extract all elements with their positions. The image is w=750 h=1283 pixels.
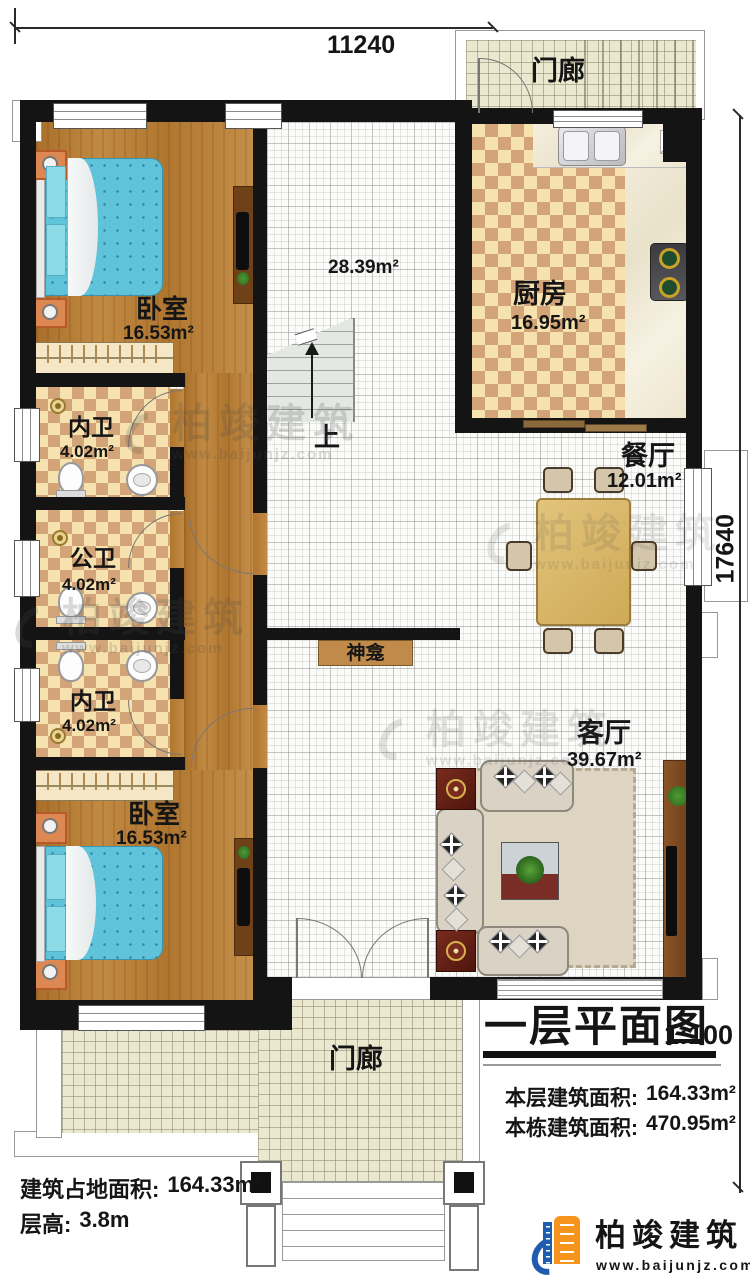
- wall: [20, 497, 185, 510]
- building-area-row: 本栋建筑面积: 470.95m²: [505, 1112, 736, 1142]
- brand-url: www.baijunjz.com: [596, 1258, 750, 1272]
- dimension-tick: [732, 1181, 743, 1192]
- porch-bottom-label: 门廊: [329, 1046, 383, 1073]
- floor-plan-canvas: 门廊 上: [0, 0, 750, 1283]
- window: [14, 668, 40, 722]
- bath-inner-top-label: 内卫: [68, 416, 114, 439]
- sink-basin: [563, 131, 589, 161]
- brand-building-icon: [554, 1216, 580, 1264]
- stairs-up-label: 上: [314, 424, 340, 450]
- floor-area-label: 本层建筑面积:: [505, 1082, 638, 1112]
- dimension-top-value: 11240: [327, 33, 395, 58]
- title-underline-thin: [483, 1064, 721, 1066]
- footprint-area-row: 建筑占地面积: 164.33m²: [20, 1172, 262, 1204]
- toilet-tank: [56, 616, 86, 624]
- bath-inner-bottom-area-label: 4.02m²: [62, 717, 116, 734]
- dining-chair: [543, 467, 573, 493]
- door-opening: [253, 705, 267, 768]
- brand-name: 柏竣建筑: [595, 1220, 743, 1251]
- washbasin: [126, 464, 158, 496]
- kitchen-area-label: 16.95m²: [511, 313, 586, 333]
- dining-chair: [543, 628, 573, 654]
- floor-area-value: 164.33m²: [646, 1082, 736, 1112]
- kitchen-window: [553, 110, 643, 128]
- floor-area-row: 本层建筑面积: 164.33m²: [505, 1082, 736, 1112]
- pillow: [46, 166, 66, 218]
- pillow: [46, 854, 66, 900]
- footprint-area-value: 164.33m²: [167, 1172, 261, 1204]
- bath-public-area-label: 4.02m²: [62, 576, 116, 593]
- pillow: [46, 906, 66, 952]
- storey-height-row: 层高: 3.8m: [20, 1207, 129, 1239]
- living-label: 客厅: [577, 720, 631, 747]
- dimension-line-top: [15, 27, 493, 29]
- building-area-value: 470.95m²: [646, 1112, 736, 1142]
- window: [53, 103, 147, 129]
- porch-column-base: [449, 1205, 479, 1271]
- footprint-area-label: 建筑占地面积:: [20, 1172, 159, 1204]
- staircase-edge: [353, 318, 355, 422]
- stairs-direction-arrow: [311, 354, 313, 418]
- shrine: 神龛: [318, 640, 413, 666]
- window-return: [702, 958, 718, 1000]
- wall: [253, 628, 460, 640]
- nightstand: [33, 812, 67, 844]
- toilet-tank: [56, 642, 86, 650]
- window: [225, 103, 282, 129]
- bedroom-top-label: 卧室: [136, 296, 188, 322]
- stove-burner-icon: [659, 248, 680, 269]
- plant-icon: [516, 856, 544, 884]
- bath-public-label: 公卫: [70, 547, 116, 570]
- tv-monitor-top: [236, 212, 249, 270]
- wall: [455, 100, 472, 420]
- porch-steps: [282, 1181, 445, 1261]
- porch-top-decking: [584, 40, 696, 114]
- porch-column-base: [246, 1205, 276, 1267]
- dining-chair: [506, 541, 532, 571]
- wall: [253, 768, 267, 1000]
- end-table-ornament-icon: [446, 941, 466, 961]
- kitchen-label: 厨房: [513, 281, 567, 308]
- nightstand: [33, 958, 67, 990]
- shrine-label: 神龛: [346, 644, 384, 663]
- stove-burner-icon: [659, 277, 680, 298]
- plant-icon: [668, 786, 688, 806]
- sink-basin: [594, 131, 620, 161]
- wall: [253, 122, 267, 513]
- wall: [20, 373, 185, 387]
- end-table-ornament-icon: [446, 779, 466, 799]
- washbasin: [126, 650, 158, 682]
- wall: [253, 977, 292, 1000]
- sliding-door-leaf: [585, 424, 647, 432]
- wardrobe-bottom: [34, 770, 174, 801]
- title-underline-thick: [483, 1051, 716, 1058]
- wall: [170, 640, 184, 700]
- living-area-label: 39.67m²: [567, 750, 642, 770]
- wall: [20, 757, 185, 770]
- wall: [20, 627, 185, 640]
- storey-height-label: 层高:: [20, 1207, 71, 1239]
- window: [14, 408, 40, 462]
- dining-label: 餐厅: [621, 443, 675, 470]
- porch-column-core: [454, 1172, 474, 1193]
- porch-walkway: [36, 1028, 62, 1138]
- dining-chair: [631, 541, 657, 571]
- plan-scale: 1:100: [664, 1022, 733, 1049]
- brand-tower-icon: [543, 1222, 552, 1264]
- plant-icon: [238, 846, 250, 859]
- window: [14, 540, 40, 597]
- shower-icon: [50, 398, 66, 414]
- door-leaf: [427, 918, 429, 978]
- tv-monitor-bottom: [237, 868, 250, 926]
- nightstand: [33, 298, 67, 328]
- dining-table: [536, 498, 631, 626]
- hall-area-label: 28.39m²: [328, 258, 399, 277]
- brand-logo: 柏竣建筑 www.baijunjz.com: [533, 1214, 743, 1276]
- dimension-line-right: [739, 115, 741, 1193]
- living-entry-steps: [497, 979, 663, 999]
- sliding-door-leaf: [523, 420, 585, 428]
- window-return: [700, 612, 718, 658]
- wall: [170, 568, 184, 627]
- washbasin: [126, 592, 158, 624]
- toilet: [58, 650, 84, 682]
- dining-window: [684, 468, 712, 586]
- bedroom-bottom-label: 卧室: [128, 801, 180, 827]
- dining-chair: [594, 628, 624, 654]
- stairs-arrow-head-icon: [305, 342, 319, 355]
- wardrobe-top: [34, 342, 174, 374]
- building-area-label: 本栋建筑面积:: [505, 1112, 638, 1142]
- bedroom-top-area-label: 16.53m²: [123, 324, 194, 343]
- bath-inner-bottom-label: 内卫: [70, 690, 116, 713]
- pillow: [46, 224, 66, 276]
- bed-headboard: [36, 846, 45, 962]
- bedroom-window: [78, 1005, 205, 1031]
- porch-edge: [462, 995, 480, 1165]
- plant-icon: [237, 272, 249, 285]
- porch-top-label: 门廊: [531, 58, 585, 85]
- shower-icon: [52, 530, 68, 546]
- dimension-right-value: 17640: [714, 518, 739, 584]
- dimension-tick: [732, 108, 743, 119]
- tv-screen: [666, 846, 677, 936]
- entry-threshold: [292, 977, 430, 1000]
- door-opening: [253, 513, 267, 575]
- dining-area-label: 12.01m²: [607, 471, 682, 491]
- bedroom-bottom-area-label: 16.53m²: [116, 829, 187, 848]
- bath-inner-top-area-label: 4.02m²: [60, 443, 114, 460]
- porch-bottom-floor: [62, 1030, 258, 1133]
- storey-height-value: 3.8m: [79, 1207, 129, 1239]
- wall: [253, 575, 267, 705]
